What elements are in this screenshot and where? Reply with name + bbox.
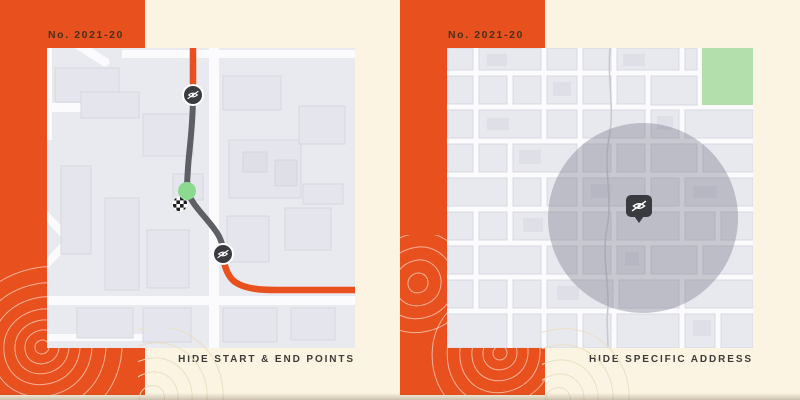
hidden-start-marker — [183, 85, 203, 105]
route-map — [47, 48, 355, 348]
park-area — [702, 48, 753, 105]
hidden-end-marker — [213, 244, 233, 264]
address-map-canvas — [447, 48, 753, 348]
address-map — [447, 48, 753, 348]
start-dot — [178, 182, 196, 200]
bottom-edge-shadow — [0, 393, 800, 400]
privacy-zone-circle — [548, 123, 738, 313]
caption-hide-start-end: HIDE START & END POINTS — [47, 354, 355, 365]
issue-number-label: No. 2021-20 — [48, 29, 124, 41]
route-map-canvas — [47, 48, 355, 348]
caption-hide-address: HIDE SPECIFIC ADDRESS — [447, 354, 753, 365]
issue-number-label: No. 2021-20 — [448, 29, 524, 41]
